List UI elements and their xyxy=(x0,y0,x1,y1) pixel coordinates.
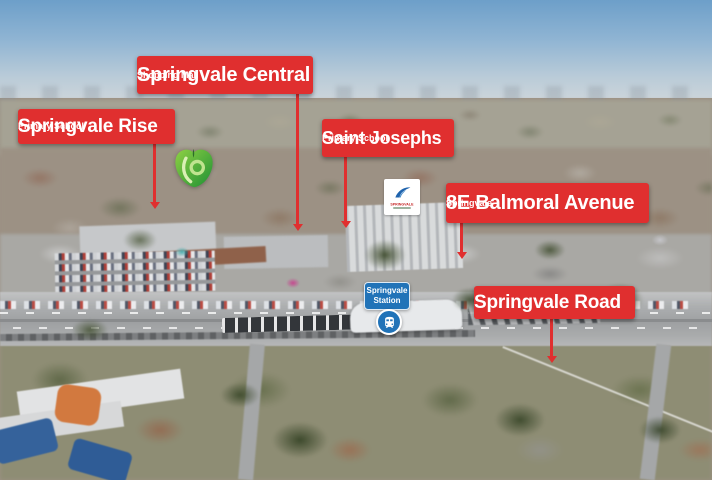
callout-saint-josephs: Saint Josephs Primary School xyxy=(322,119,454,157)
orange-shade-canopy xyxy=(54,383,103,427)
train-icon xyxy=(376,309,402,335)
logo-subtext-line xyxy=(393,207,411,209)
station-label: Springvale Station xyxy=(364,282,410,310)
pointer-saint-josephs xyxy=(344,156,347,222)
car-park xyxy=(55,251,216,294)
pointer-property xyxy=(460,222,463,253)
callout-subtitle: Springvale xyxy=(446,199,492,208)
callout-subtitle: Primary School xyxy=(18,122,84,131)
pointer-springvale-road xyxy=(550,318,553,357)
callout-subtitle: Shopping Mall xyxy=(137,71,199,80)
callout-springvale-road: Springvale Road xyxy=(474,286,635,319)
springvale-centre-logo: SPRINGVALE xyxy=(384,179,420,215)
pointer-springvale-rise xyxy=(153,143,156,203)
callout-subtitle: Primary School xyxy=(322,134,388,143)
sky xyxy=(0,0,712,98)
aerial-photo-listing: SPRINGVALE Springvale Central Shopping M… xyxy=(0,0,712,480)
callout-springvale-central: Springvale Central Shopping Mall xyxy=(137,56,313,94)
callout-property-address: 8E Balmoral Avenue Springvale xyxy=(446,183,649,223)
callout-title: Springvale Road xyxy=(474,293,621,312)
logo-swoosh-icon xyxy=(392,185,412,200)
callout-springvale-rise: Springvale Rise Primary School xyxy=(18,109,175,144)
station-label-line1: Springvale xyxy=(365,286,409,296)
pointer-springvale-central xyxy=(296,93,299,225)
woolworths-logo-icon xyxy=(170,145,217,192)
station-label-line2: Station xyxy=(365,296,409,306)
logo-text: SPRINGVALE xyxy=(390,203,413,207)
